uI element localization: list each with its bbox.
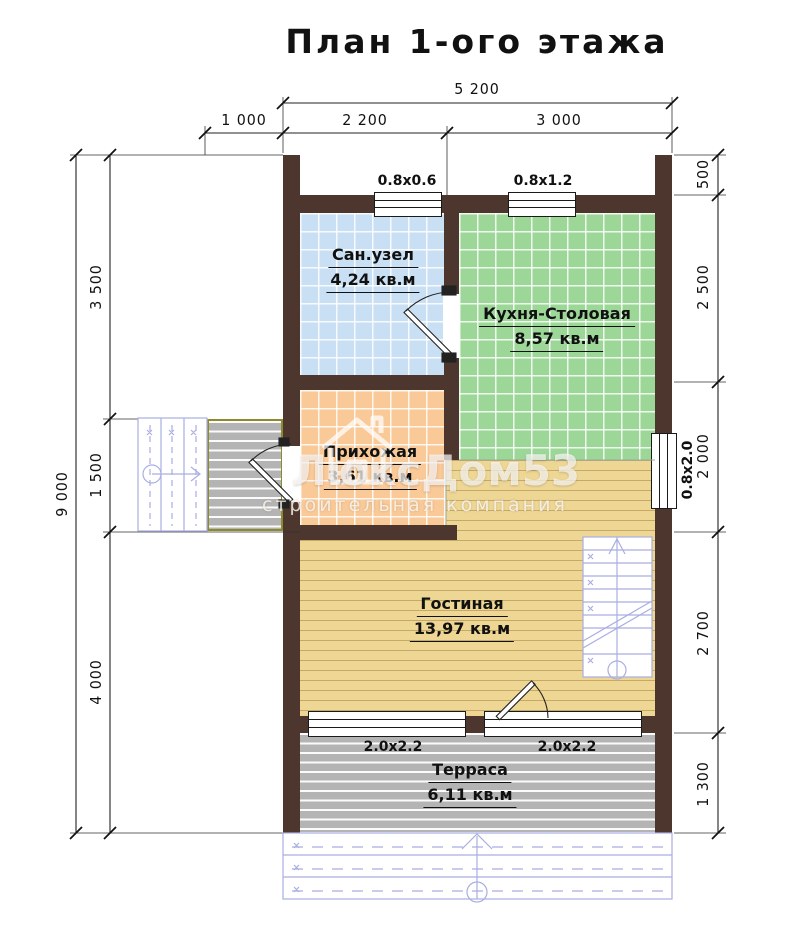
floor-plan-drawing: План 1-ого этажа (0, 0, 800, 950)
porch-deck (207, 419, 283, 531)
bottom-steps (283, 833, 672, 902)
label-window-terrace-left: 2.0x2.2 (364, 739, 423, 755)
window-bathroom (374, 192, 442, 217)
wall-top (283, 195, 672, 213)
bathroom-floor (300, 213, 444, 375)
label-terrace: Терраса 6,11 кв.м (423, 758, 516, 808)
window-kitchen (508, 192, 576, 217)
dim-right-4: 2 700 (694, 610, 712, 656)
dim-right-1: 500 (694, 159, 712, 189)
window-side (651, 433, 677, 509)
dim-right-3: 2 000 (694, 433, 712, 479)
label-living: Гостиная 13,97 кв.м (410, 592, 514, 642)
label-window-kitchen: 0.8x1.2 (514, 173, 573, 189)
label-kitchen: Кухня-Столовая 8,57 кв.м (479, 302, 635, 352)
label-hallway: Прихожая 3,61 кв.м (319, 440, 421, 490)
wall-bathroom-hall (283, 375, 459, 390)
entrance-door-opening (282, 446, 301, 502)
dim-top-total: 5 200 (454, 80, 500, 98)
dim-top-3: 3 000 (536, 111, 582, 129)
label-bathroom: Сан.узел 4,24 кв.м (326, 243, 419, 293)
dim-left-3: 4 000 (87, 659, 105, 705)
window-terrace-right (484, 711, 642, 737)
wall-hallway-living (283, 525, 457, 540)
dim-right-2: 2 500 (694, 264, 712, 310)
page-title: План 1-ого этажа (277, 22, 677, 61)
label-window-bathroom: 0.8x0.6 (378, 173, 437, 189)
window-terrace-left (308, 711, 466, 737)
dim-left-1: 3 500 (87, 264, 105, 310)
bathroom-door-opening (443, 294, 460, 358)
dim-top-2: 2 200 (342, 111, 388, 129)
porch-steps (138, 418, 207, 531)
dim-left-2: 1 500 (87, 452, 105, 498)
dim-left-total: 9 000 (53, 471, 71, 517)
label-window-terrace-right: 2.0x2.2 (538, 739, 597, 755)
dim-right-5: 1 300 (694, 761, 712, 807)
dim-top-1: 1 000 (221, 111, 267, 129)
